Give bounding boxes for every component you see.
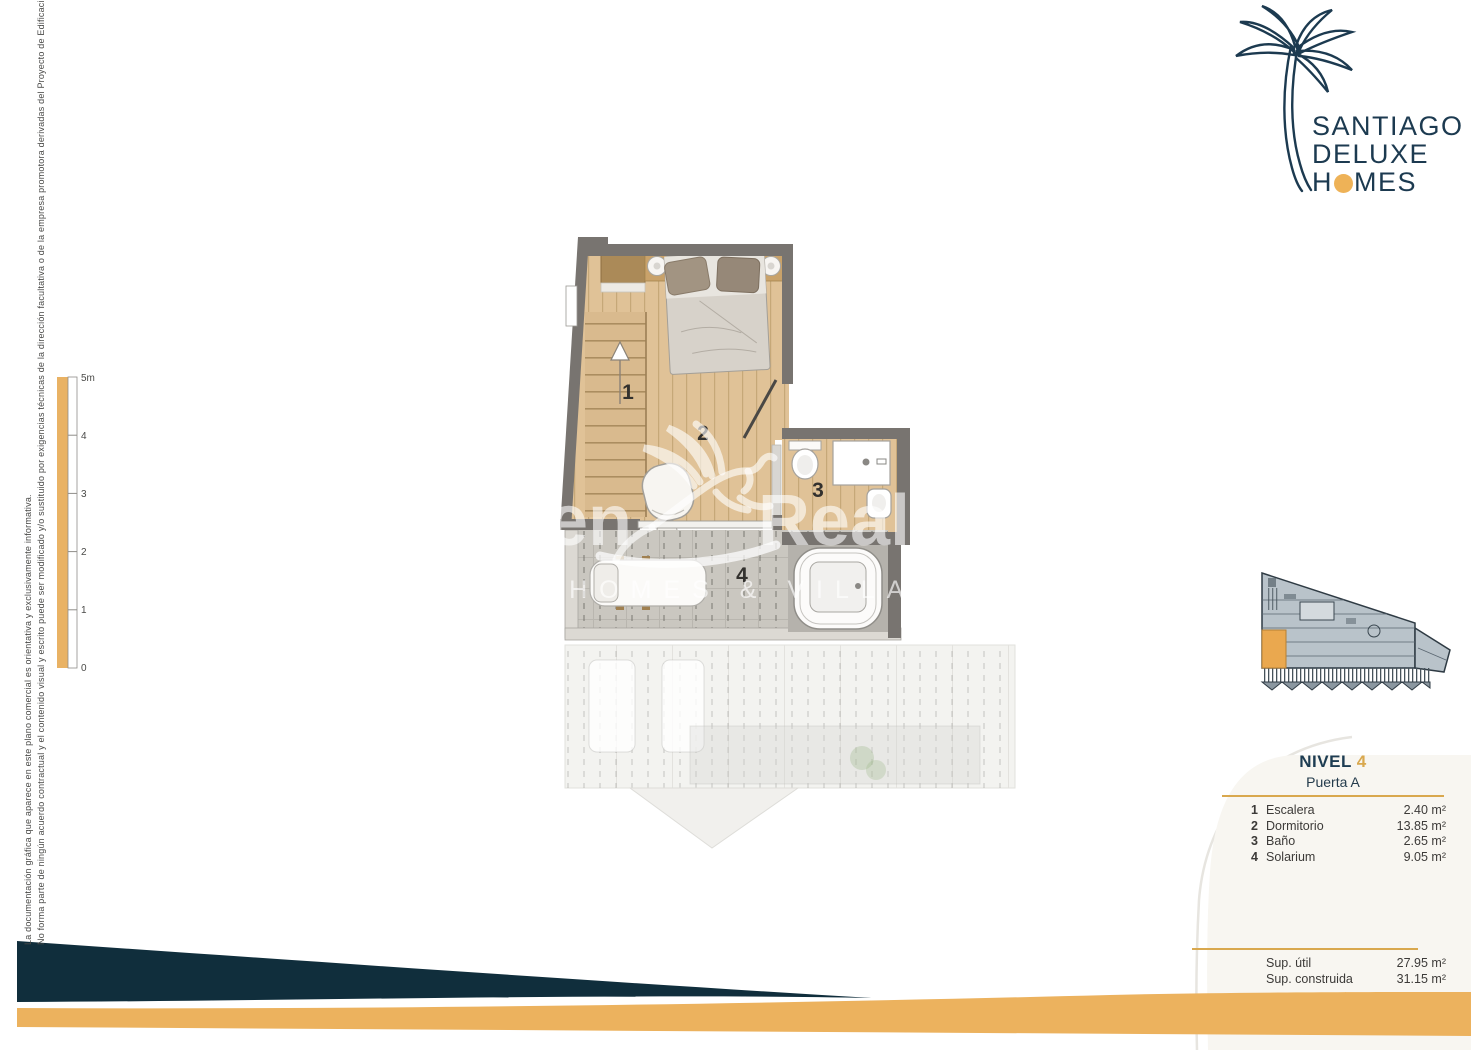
- disclaimer-line-2: No forma parte de ningún acuerdo contrac…: [35, 10, 48, 945]
- legend-row: 3 Baño 2.65 m²: [1208, 834, 1446, 850]
- legend-name: Dormitorio: [1266, 819, 1389, 835]
- scale-label-2: 2: [81, 547, 87, 558]
- legend-area: 13.85 m²: [1397, 819, 1446, 835]
- legend-name: Escalera: [1266, 803, 1396, 819]
- page-artwork: 5m 4 3 2 1 0: [0, 0, 1471, 1050]
- bathroom-sink: [833, 441, 890, 485]
- legend-row: 1 Escalera 2.40 m²: [1208, 803, 1446, 819]
- floor-plan: 1 2 3 4 Asten Realty NEW HOMES & VILLAS: [432, 237, 1015, 848]
- navy-swoosh: [17, 941, 872, 1002]
- legend-num: 4: [1208, 850, 1258, 866]
- brochure-page: { "disclaimer": { "line_outer": "La docu…: [0, 0, 1471, 1050]
- legend-area: 2.40 m²: [1404, 803, 1446, 819]
- logo-sun-icon: [1334, 174, 1353, 193]
- total-name: Sup. útil: [1266, 955, 1389, 971]
- gold-divider-bottom: [1192, 948, 1418, 950]
- legend-num: 1: [1208, 803, 1258, 819]
- brand-line-3: HMES: [1312, 168, 1464, 196]
- legend-num: 2: [1208, 819, 1258, 835]
- total-area: 27.95 m²: [1397, 955, 1446, 971]
- room-label-escalera: 1: [622, 381, 634, 404]
- level-label: NIVEL: [1299, 752, 1351, 771]
- totals-row: Sup. útil 27.95 m²: [1208, 955, 1446, 971]
- brand-logo: SANTIAGO DELUXE HMES: [1312, 112, 1464, 196]
- total-name: Sup. construida: [1266, 971, 1389, 987]
- scale-label-1: 1: [81, 605, 87, 616]
- highlighted-unit: [1262, 630, 1286, 668]
- scale-bar: 5m 4 3 2 1 0: [57, 373, 95, 674]
- lower-roof-ghost: [565, 645, 1015, 848]
- legend-name: Baño: [1266, 834, 1396, 850]
- disclaimer-line-1: La documentación gráfica que aparece en …: [22, 10, 35, 945]
- double-bed: [663, 251, 770, 374]
- legend-num: 3: [1208, 834, 1258, 850]
- scale-label-0: 0: [81, 663, 87, 674]
- room-legend: 1 Escalera 2.40 m² 2 Dormitorio 13.85 m²…: [1208, 803, 1446, 865]
- total-area: 31.15 m²: [1397, 971, 1446, 987]
- scale-label-4: 4: [81, 431, 87, 442]
- closet: [601, 252, 645, 292]
- gold-divider-top: [1222, 795, 1444, 797]
- scale-label-3: 3: [81, 489, 87, 500]
- watermark-word2: Realty: [758, 481, 974, 561]
- legend-row: 2 Dormitorio 13.85 m²: [1208, 819, 1446, 835]
- legend-name: Solarium: [1266, 850, 1396, 866]
- scale-label-5m: 5m: [81, 373, 95, 384]
- level-title: NIVEL 4 Puerta A: [1208, 752, 1458, 790]
- watermark-word1: Asten: [432, 481, 632, 561]
- surface-totals: Sup. útil 27.95 m² Sup. construida 31.15…: [1208, 955, 1446, 987]
- building-key-plan: [1262, 573, 1450, 690]
- legal-disclaimer: La documentación gráfica que aparece en …: [22, 10, 48, 945]
- brand-line-2: DELUXE: [1312, 140, 1464, 168]
- brand-line-1: SANTIAGO: [1312, 112, 1464, 140]
- watermark-tagline: NEW HOMES & VILLAS: [456, 576, 944, 604]
- window: [566, 286, 577, 326]
- legend-area: 2.65 m²: [1404, 834, 1446, 850]
- legend-row: 4 Solarium 9.05 m²: [1208, 850, 1446, 866]
- door-label: Puerta A: [1208, 774, 1458, 790]
- legend-area: 9.05 m²: [1404, 850, 1446, 866]
- level-number: 4: [1357, 752, 1367, 771]
- totals-row: Sup. construida 31.15 m²: [1208, 971, 1446, 987]
